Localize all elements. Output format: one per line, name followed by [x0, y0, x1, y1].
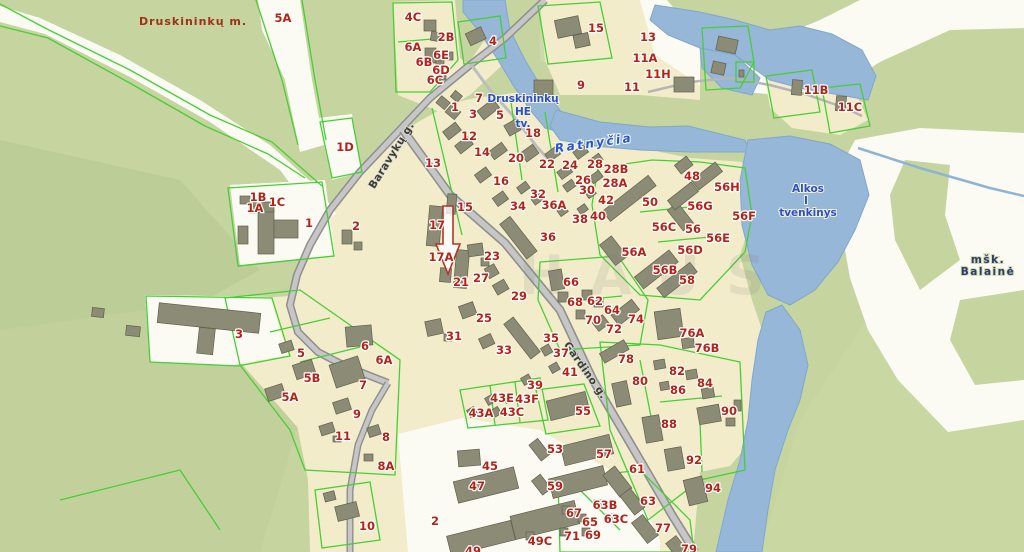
parcel-label-64: 64	[604, 303, 620, 317]
parcel-label-11B: 11B	[804, 83, 829, 97]
parcel-label-7: 7	[475, 91, 483, 105]
parcel-label-25: 25	[476, 311, 492, 325]
parcel-label-47: 47	[469, 479, 485, 493]
parcel-label-2: 2	[431, 514, 439, 528]
parcel-label-27: 27	[473, 271, 489, 285]
parcel-label-1D: 1D	[336, 140, 354, 154]
parcel-label-28A: 28A	[603, 176, 628, 190]
parcel-label-11A: 11A	[633, 51, 658, 65]
parcel-label-9: 9	[577, 78, 585, 92]
parcel-label-8: 8	[382, 430, 390, 444]
parcel-label-1A: 1A	[247, 201, 264, 215]
parcel-label-63B: 63B	[593, 498, 618, 512]
parcel-label-6B: 6B	[416, 55, 433, 69]
parcel-label-45: 45	[482, 459, 498, 473]
parcel-label-43E: 43E	[490, 391, 514, 405]
parcel-label-8A: 8A	[378, 459, 395, 473]
parcel-label-48: 48	[684, 169, 700, 183]
parcel-label-13: 13	[640, 30, 656, 44]
parcel-label-59: 59	[547, 479, 563, 493]
parcel-label-68: 68	[567, 295, 583, 309]
parcel-label-49: 49	[465, 544, 481, 552]
parcel-label-72: 72	[606, 322, 622, 336]
parcel-label-22: 22	[539, 157, 555, 171]
parcel-label-29: 29	[511, 289, 527, 303]
parcel-label-15: 15	[457, 200, 473, 214]
parcel-label-18: 18	[525, 126, 541, 140]
parcel-label-49C: 49C	[528, 534, 552, 548]
parcel-label-4C: 4C	[405, 10, 421, 24]
parcel-label-69: 69	[585, 528, 601, 542]
parcel-label-36A: 36A	[542, 198, 567, 212]
parcel-label-43F: 43F	[515, 392, 539, 406]
parcel-label-24: 24	[562, 158, 578, 172]
parcel-label-15: 15	[588, 21, 604, 35]
parcel-label-43C: 43C	[500, 405, 524, 419]
parcel-label-63: 63	[640, 494, 656, 508]
parcel-label-28B: 28B	[604, 162, 629, 176]
parcel-label-1C: 1C	[269, 195, 285, 209]
parcel-label-94: 94	[705, 481, 721, 495]
parcel-label-10: 10	[359, 519, 375, 533]
parcel-label-3: 3	[235, 327, 243, 341]
parcel-label-79: 79	[681, 542, 697, 552]
parcel-label-56H: 56H	[714, 180, 740, 194]
parcel-label-6E: 6E	[433, 48, 449, 62]
parcel-label-2: 2	[352, 219, 360, 233]
parcel-label-53: 53	[547, 442, 563, 456]
parcel-label-5: 5	[496, 108, 504, 122]
parcel-label-55: 55	[575, 404, 591, 418]
parcel-label-11H: 11H	[645, 67, 671, 81]
parcel-label-7: 7	[359, 378, 367, 392]
parcel-label-56: 56	[685, 222, 701, 236]
parcel-label-5: 5	[297, 346, 305, 360]
parcel-label-70: 70	[585, 313, 601, 327]
parcel-label-61: 61	[629, 462, 645, 476]
parcel-label-34: 34	[510, 199, 526, 213]
parcel-label-11: 11	[624, 80, 640, 94]
parcel-label-42: 42	[598, 193, 614, 207]
water-body-label: tvenkinys	[779, 207, 837, 219]
parcel-label-37: 37	[553, 346, 569, 360]
parcel-label-16: 16	[493, 174, 509, 188]
parcel-label-6A: 6A	[405, 40, 422, 54]
parcel-label-3: 3	[469, 107, 477, 121]
parcel-label-56E: 56E	[706, 231, 730, 245]
parcel-label-63C: 63C	[604, 512, 628, 526]
parcel-label-28: 28	[587, 157, 603, 171]
parcel-label-77: 77	[655, 521, 671, 535]
parcel-label-56B: 56B	[653, 263, 678, 277]
water-body-label: Alkos	[792, 183, 824, 195]
parcel-label-1: 1	[451, 100, 459, 114]
parcel-label-5A: 5A	[282, 390, 299, 404]
water-body-label: Druskininkų	[487, 93, 559, 105]
forest-label: mšk.	[971, 254, 1005, 266]
parcel-label-76B: 76B	[695, 341, 720, 355]
parcel-label-65: 65	[582, 515, 598, 529]
parcel-label-1: 1	[305, 216, 313, 230]
parcel-label-20: 20	[508, 151, 524, 165]
parcel-label-74: 74	[628, 312, 644, 326]
map-canvas[interactable]: HAUSDruskininkų m.Baravykų g.Gardino g.R…	[0, 0, 1024, 552]
parcel-label-5A: 5A	[275, 11, 292, 25]
parcel-label-2B: 2B	[438, 30, 455, 44]
parcel-label-50: 50	[642, 195, 658, 209]
parcel-label-41: 41	[562, 365, 578, 379]
parcel-label-56F: 56F	[732, 209, 756, 223]
parcel-label-84: 84	[697, 376, 713, 390]
parcel-label-56C: 56C	[652, 220, 676, 234]
city-label: Druskininkų m.	[139, 15, 247, 28]
parcel-label-76A: 76A	[680, 326, 705, 340]
parcel-label-92: 92	[686, 453, 702, 467]
parcel-label-43A: 43A	[469, 406, 494, 420]
parcel-label-36: 36	[540, 230, 556, 244]
parcel-label-58: 58	[679, 273, 695, 287]
parcel-label-6C: 6C	[427, 73, 443, 87]
parcel-label-56D: 56D	[677, 243, 703, 257]
parcel-label-5B: 5B	[304, 371, 321, 385]
parcel-label-88: 88	[661, 417, 677, 431]
parcel-label-90: 90	[721, 404, 737, 418]
parcel-label-6: 6	[361, 339, 369, 353]
parcel-label-39: 39	[527, 378, 543, 392]
parcel-label-67: 67	[566, 506, 582, 520]
parcel-label-23: 23	[484, 249, 500, 263]
forest-label: Balainė	[961, 266, 1015, 278]
map-viewport[interactable]: HAUSDruskininkų m.Baravykų g.Gardino g.R…	[0, 0, 1024, 552]
parcel-label-57: 57	[596, 447, 612, 461]
parcel-label-78: 78	[618, 352, 634, 366]
parcel-label-17A: 17A	[429, 250, 454, 264]
parcel-label-71: 71	[564, 529, 580, 543]
parcel-label-17: 17	[429, 218, 445, 232]
parcel-label-9: 9	[353, 407, 361, 421]
parcel-label-11C: 11C	[838, 100, 862, 114]
parcel-label-86: 86	[670, 383, 686, 397]
parcel-label-38: 38	[572, 212, 588, 226]
parcel-label-62: 62	[587, 294, 603, 308]
parcel-label-13: 13	[425, 156, 441, 170]
parcel-label-35: 35	[543, 331, 559, 345]
parcel-label-56A: 56A	[622, 245, 647, 259]
parcel-label-30: 30	[579, 183, 595, 197]
parcel-label-33: 33	[496, 343, 512, 357]
parcel-label-14: 14	[474, 145, 490, 159]
parcel-label-80: 80	[632, 374, 648, 388]
parcel-label-4: 4	[489, 34, 497, 48]
parcel-label-6A: 6A	[376, 353, 393, 367]
parcel-label-21: 21	[453, 275, 469, 289]
water-body-label: HE	[515, 106, 531, 118]
parcel-label-82: 82	[669, 364, 685, 378]
parcel-label-56G: 56G	[687, 199, 712, 213]
parcel-label-11: 11	[335, 429, 351, 443]
parcel-label-31: 31	[446, 329, 462, 343]
parcel-label-40: 40	[590, 209, 606, 223]
parcel-label-66: 66	[563, 275, 579, 289]
water-body-label: I	[804, 195, 808, 207]
parcel-label-12: 12	[461, 129, 477, 143]
